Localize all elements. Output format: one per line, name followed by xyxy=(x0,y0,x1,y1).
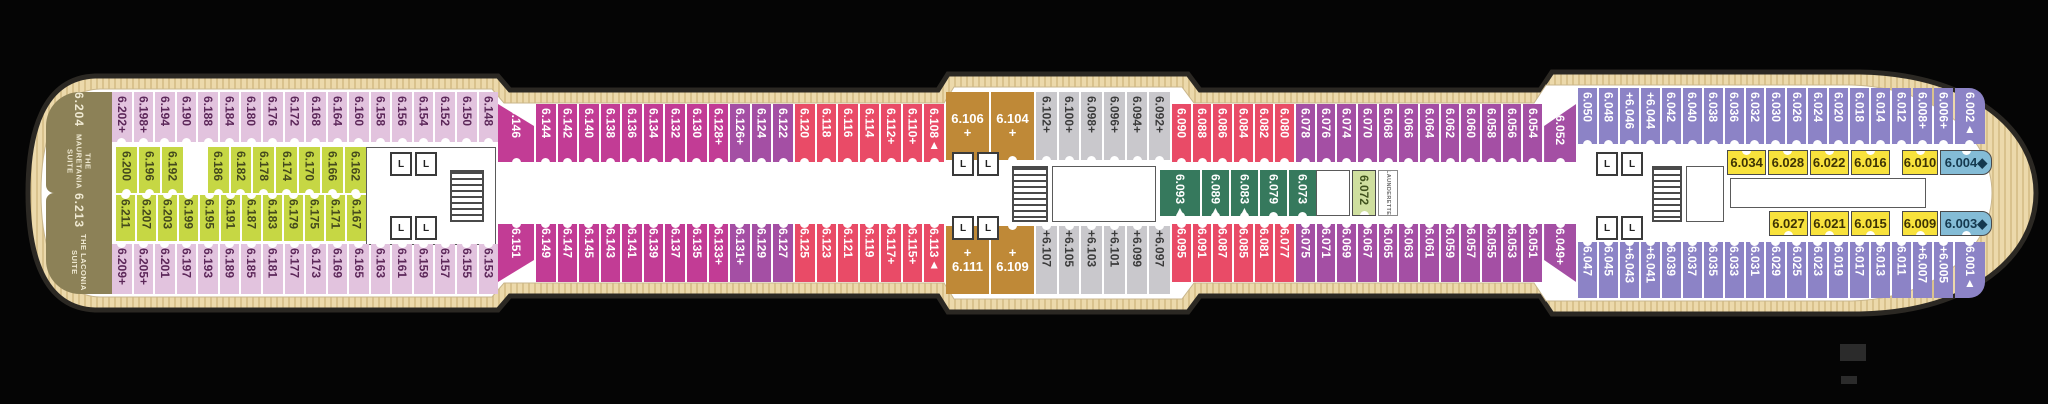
suite-name: THE MAURETANIA SUITE xyxy=(66,130,93,193)
cabin-6.016[interactable]: 6.016 xyxy=(1851,150,1890,175)
cabin-6.060[interactable]: 6.060 xyxy=(1461,104,1480,162)
cabin-6.107[interactable]: +6.107 xyxy=(1036,226,1057,294)
cabin-6.209[interactable]: 6.209+ xyxy=(112,244,132,294)
cabin-6.013[interactable]: 6.013 xyxy=(1871,242,1890,298)
cabin-6.175[interactable]: 6.175 xyxy=(305,195,324,241)
suite-6213[interactable]: 6.213THE LACONIA SUITE xyxy=(46,193,112,294)
cabin-row-mid-bottom-gray: +6.107+6.105+6.103+6.101+6.099+6.097 xyxy=(1036,226,1170,294)
cabin-6.166[interactable]: 6.166 xyxy=(322,147,343,193)
cabin-6.129[interactable]: 6.129 xyxy=(752,224,772,282)
cabin-6.171[interactable]: 6.171 xyxy=(326,195,345,241)
cabin-6.127[interactable]: 6.127 xyxy=(773,224,793,282)
lift-icon: L xyxy=(1621,152,1643,176)
cabin-6.033[interactable]: 6.033 xyxy=(1725,242,1744,298)
cabin-6.097[interactable]: +6.097 xyxy=(1149,226,1170,294)
cabin-6.119[interactable]: 6.119 xyxy=(860,224,880,282)
cabin-6.032[interactable]: 6.032 xyxy=(1746,88,1765,144)
cabin-6.161[interactable]: 6.161 xyxy=(392,244,412,294)
cabin-6.074[interactable]: 6.074 xyxy=(1337,104,1356,162)
cabin-6.150[interactable]: 6.150 xyxy=(457,92,477,142)
cabin-6.018[interactable]: 6.018 xyxy=(1850,88,1869,144)
cabin-row-aft-top-outer: 6.202+6.198+6.1946.1906.1886.1846.1806.1… xyxy=(112,92,498,142)
cabin-6.188[interactable]: 6.188 xyxy=(198,92,218,142)
decorative-mark xyxy=(1840,344,1866,361)
cabin-6.017[interactable]: 6.017 xyxy=(1850,242,1869,298)
cabin-6.156[interactable]: 6.156 xyxy=(392,92,412,142)
cabin-6.126[interactable]: 6.126+ xyxy=(730,104,750,162)
deck-layout: 6.202+6.198+6.1946.1906.1886.1846.1806.1… xyxy=(0,0,2048,404)
cabin-6.118[interactable]: 6.118 xyxy=(817,104,837,162)
cabin-6.014[interactable]: 6.014 xyxy=(1871,88,1890,144)
cabin-6.004[interactable]: 6.004◆ xyxy=(1940,150,1992,175)
cabin-6.138[interactable]: 6.138 xyxy=(601,104,621,162)
lift-icon: L xyxy=(415,216,437,240)
cabin-6.101[interactable]: +6.101 xyxy=(1104,226,1125,294)
cabin-6.035[interactable]: 6.035 xyxy=(1704,242,1723,298)
cabin-6.192[interactable]: 6.192 xyxy=(162,147,183,193)
service-room xyxy=(1686,166,1724,222)
cabin-6.131[interactable]: 6.131+ xyxy=(730,224,750,282)
cabin-6.132[interactable]: 6.132 xyxy=(665,104,685,162)
cabin-6.142[interactable]: 6.142 xyxy=(558,104,578,162)
cabin-6.083[interactable]: 6.083▲ xyxy=(1231,170,1258,216)
cabin-6.029[interactable]: 6.029 xyxy=(1766,242,1785,298)
suite-name: THE LACONIA SUITE xyxy=(70,231,88,294)
cabin-6.012[interactable]: 6.012 xyxy=(1892,88,1911,144)
cabin-6.005[interactable]: +6.005 xyxy=(1934,242,1953,298)
service-room xyxy=(1316,170,1350,216)
cabin-row-cabin-6072: 6.072 xyxy=(1352,170,1376,216)
cabin-6.036[interactable]: 6.036 xyxy=(1725,88,1744,144)
cabin-6.158[interactable]: 6.158 xyxy=(371,92,391,142)
cabin-6.189[interactable]: 6.189 xyxy=(220,244,240,294)
cabin-row-fwd-bottom-outer: 6.0476.045+6.043+6.0416.0396.0376.0356.0… xyxy=(1578,242,1985,298)
cabin-6.179[interactable]: 6.179 xyxy=(284,195,303,241)
cabin-6.108[interactable]: 6.108▲ xyxy=(924,104,944,162)
cabin-row-aft-bottom-outer: 6.209+6.205+6.2016.1976.1936.1896.1856.1… xyxy=(112,244,498,294)
cabin-6.197[interactable]: 6.197 xyxy=(177,244,197,294)
cabin-6.114[interactable]: 6.114 xyxy=(860,104,880,162)
stairs-icon xyxy=(1012,166,1048,222)
cabin-6.155[interactable]: 6.155 xyxy=(457,244,477,294)
cabin-6.169[interactable]: 6.169 xyxy=(328,244,348,294)
cabin-6.205[interactable]: 6.205+ xyxy=(134,244,154,294)
cabin-6.041[interactable]: +6.041 xyxy=(1641,242,1660,298)
stairs-icon xyxy=(450,170,484,222)
cabin-6.128[interactable]: 6.128+ xyxy=(709,104,729,162)
cabin-6.065[interactable]: 6.065 xyxy=(1379,224,1398,282)
cabin-6.021[interactable]: 6.021 xyxy=(1810,211,1849,236)
cabin-6.028[interactable]: 6.028 xyxy=(1768,150,1807,175)
cabin-6.100[interactable]: 6.100+ xyxy=(1059,92,1080,160)
cabin-6.194[interactable]: 6.194 xyxy=(155,92,175,142)
cabin-row-aft-top-inner: 6.2006.1966.1926.1866.1826.1786.1746.170… xyxy=(116,147,366,193)
cabin-6.009[interactable]: 6.009 xyxy=(1902,211,1938,236)
cabin-6.120[interactable]: 6.120 xyxy=(795,104,815,162)
cabin-row-waist-bottom: 6.1516.1496.1476.1456.1436.1416.1396.137… xyxy=(498,224,944,282)
cabin-6.098[interactable]: 6.098+ xyxy=(1081,92,1102,160)
cabin-6.057[interactable]: 6.057 xyxy=(1461,224,1480,282)
cabin-6.196[interactable]: 6.196 xyxy=(139,147,160,193)
cabin-6.202[interactable]: 6.202+ xyxy=(112,92,132,142)
cabin-6.001[interactable]: 6.001▲ xyxy=(1955,242,1985,298)
cabin-6.141[interactable]: 6.141 xyxy=(622,224,642,282)
cabin-6.105[interactable]: +6.105 xyxy=(1059,226,1080,294)
cabin-6.003[interactable]: 6.003◆ xyxy=(1940,211,1992,236)
cabin-6.070[interactable]: 6.070 xyxy=(1358,104,1377,162)
cabin-6.078[interactable]: 6.078 xyxy=(1296,104,1315,162)
cabin-row-mid-inside-teal: 6.093▲6.089▲6.083▲6.0796.073 xyxy=(1160,170,1316,216)
cabin-6.075[interactable]: 6.075 xyxy=(1296,224,1315,282)
lift-icon: L xyxy=(390,216,412,240)
lift-icon: L xyxy=(952,152,974,176)
cabin-6.059[interactable]: 6.059 xyxy=(1441,224,1460,282)
cabin-6.072[interactable]: 6.072 xyxy=(1352,170,1376,216)
cabin-6.030[interactable]: 6.030 xyxy=(1766,88,1785,144)
cabin-6.106[interactable]: 6.106 + xyxy=(946,92,989,160)
suite-6204[interactable]: 6.204THE MAURETANIA SUITE xyxy=(46,92,112,193)
cabin-6.153[interactable]: 6.153 xyxy=(479,244,499,294)
launderette-room: LAUNDERETTE xyxy=(1378,170,1398,216)
lift-icon: L xyxy=(1596,216,1618,240)
cabin-6.008[interactable]: 6.008+ xyxy=(1913,88,1932,144)
cabin-6.034[interactable]: 6.034 xyxy=(1727,150,1766,175)
cabin-6.087[interactable]: 6.087 xyxy=(1213,224,1232,282)
cabin-6.039[interactable]: 6.039 xyxy=(1662,242,1681,298)
cabin-6.173[interactable]: 6.173 xyxy=(306,244,326,294)
cabin-6.148[interactable]: 6.148 xyxy=(479,92,499,142)
cabin-6.130[interactable]: 6.130 xyxy=(687,104,707,162)
cabin-6.080[interactable]: 6.080 xyxy=(1275,104,1294,162)
cabin-6.122[interactable]: 6.122 xyxy=(773,104,793,162)
cabin-row-fwd-bottom-mid-a: 6.0276.0216.015 xyxy=(1769,211,1890,236)
cabin-row-fwd-bottom-mid-b: 6.0096.003◆ xyxy=(1902,211,1992,236)
cabin-6.063[interactable]: 6.063 xyxy=(1399,224,1418,282)
cabin-6.038[interactable]: 6.038 xyxy=(1704,88,1723,144)
cabin-6.183[interactable]: 6.183 xyxy=(263,195,282,241)
cabin-6.124[interactable]: 6.124 xyxy=(752,104,772,162)
stairs-icon xyxy=(1652,166,1682,222)
cabin-6.064[interactable]: 6.064 xyxy=(1420,104,1439,162)
cabin-6.052[interactable]: +6.052 xyxy=(1544,104,1576,162)
cabin-6.094[interactable]: 6.094+ xyxy=(1127,92,1148,160)
cabin-6.137[interactable]: 6.137 xyxy=(665,224,685,282)
cabin-6.174[interactable]: 6.174 xyxy=(276,147,297,193)
cabin-6.095[interactable]: 6.095 xyxy=(1172,224,1191,282)
cabin-6.140[interactable]: 6.140 xyxy=(579,104,599,162)
cabin-6.157[interactable]: 6.157 xyxy=(435,244,455,294)
cabin-6.093[interactable]: 6.093▲ xyxy=(1160,170,1200,216)
cabin-6.079[interactable]: 6.079 xyxy=(1260,170,1287,216)
cabin-6.068[interactable]: 6.068 xyxy=(1379,104,1398,162)
cabin-6.164[interactable]: 6.164 xyxy=(328,92,348,142)
cabin-6.187[interactable]: 6.187 xyxy=(242,195,261,241)
cabin-6.144[interactable]: 6.144 xyxy=(536,104,556,162)
cabin-6.200[interactable]: 6.200 xyxy=(116,147,137,193)
cabin-row-mid-top-run: 6.0906.0886.0866.0846.0826.0806.0786.076… xyxy=(1172,104,1576,162)
cabin-6.026[interactable]: 6.026 xyxy=(1787,88,1806,144)
cabin-6.199[interactable]: 6.199 xyxy=(179,195,198,241)
cabin-6.043[interactable]: +6.043 xyxy=(1620,242,1639,298)
cabin-6.185[interactable]: 6.185 xyxy=(241,244,261,294)
cabin-6.086[interactable]: 6.086 xyxy=(1213,104,1232,162)
deck-plan-canvas: 6.202+6.198+6.1946.1906.1886.1846.1806.1… xyxy=(0,0,2048,404)
cabin-6.045[interactable]: 6.045 xyxy=(1599,242,1618,298)
lift-icon: L xyxy=(415,152,437,176)
cabin-6.031[interactable]: 6.031 xyxy=(1746,242,1765,298)
cabin-6.182[interactable]: 6.182 xyxy=(231,147,252,193)
cabin-6.062[interactable]: 6.062 xyxy=(1441,104,1460,162)
cabin-6.027[interactable]: 6.027 xyxy=(1769,211,1808,236)
cabin-6.019[interactable]: 6.019 xyxy=(1829,242,1848,298)
empty-slot xyxy=(185,147,206,193)
lift-icon: L xyxy=(977,216,999,240)
cabin-6.011[interactable]: 6.011 xyxy=(1892,242,1911,298)
cabin-6.125[interactable]: 6.125 xyxy=(795,224,815,282)
cabin-row-fwd-top-outer: 6.0506.048+6.046+6.0446.0426.0406.0386.0… xyxy=(1578,88,1985,144)
cabin-6.170[interactable]: 6.170 xyxy=(299,147,320,193)
cabin-6.091[interactable]: 6.091 xyxy=(1193,224,1212,282)
cabin-6.096[interactable]: 6.096+ xyxy=(1104,92,1125,160)
cabin-6.046[interactable]: +6.046 xyxy=(1620,88,1639,144)
cabin-6.190[interactable]: 6.190 xyxy=(177,92,197,142)
cabin-6.178[interactable]: 6.178 xyxy=(253,147,274,193)
cabin-6.181[interactable]: 6.181 xyxy=(263,244,283,294)
cabin-6.092[interactable]: 6.092+ xyxy=(1149,92,1170,160)
cabin-6.058[interactable]: 6.058 xyxy=(1482,104,1501,162)
cabin-6.069[interactable]: 6.069 xyxy=(1337,224,1356,282)
cabin-row-mid-bottom-run: 6.0956.0916.0876.0856.0816.0776.0756.071… xyxy=(1172,224,1576,282)
cabin-6.085[interactable]: 6.085 xyxy=(1234,224,1253,282)
cabin-row-waist-top: 6.1466.1446.1426.1406.1386.1366.1346.132… xyxy=(498,104,944,162)
cabin-6.139[interactable]: 6.139 xyxy=(644,224,664,282)
cabin-6.207[interactable]: 6.207 xyxy=(137,195,156,241)
service-room xyxy=(1052,166,1156,222)
cabin-6.211[interactable]: 6.211 xyxy=(116,195,135,241)
cabin-6.201[interactable]: 6.201 xyxy=(155,244,175,294)
cabin-6.116[interactable]: 6.116 xyxy=(838,104,858,162)
cabin-6.099[interactable]: +6.099 xyxy=(1127,226,1148,294)
cabin-6.151[interactable]: 6.151 xyxy=(498,224,534,282)
cabin-6.104[interactable]: 6.104 + xyxy=(991,92,1034,160)
cabin-6.044[interactable]: +6.044 xyxy=(1641,88,1660,144)
cabin-6.143[interactable]: 6.143 xyxy=(601,224,621,282)
cabin-6.152[interactable]: 6.152 xyxy=(435,92,455,142)
cabin-6.121[interactable]: 6.121 xyxy=(838,224,858,282)
cabin-6.054[interactable]: 6.054 xyxy=(1523,104,1542,162)
cabin-6.172[interactable]: 6.172 xyxy=(285,92,305,142)
cabin-row-mid-top-brown: 6.106 +6.104 + xyxy=(946,92,1034,160)
cabin-6.077[interactable]: 6.077 xyxy=(1275,224,1294,282)
cabin-6.168[interactable]: 6.168 xyxy=(306,92,326,142)
cabin-row-fwd-top-mid-b: 6.0106.004◆ xyxy=(1902,150,1992,175)
cabin-6.162[interactable]: 6.162 xyxy=(345,147,366,193)
cabin-6.134[interactable]: 6.134 xyxy=(644,104,664,162)
cabin-6.110[interactable]: 6.110+ xyxy=(903,104,923,162)
cabin-6.053[interactable]: 6.053 xyxy=(1503,224,1522,282)
cabin-6.006[interactable]: 6.006+ xyxy=(1934,88,1953,144)
cabin-row-aft-bottom-inner: 6.2116.2076.2036.1996.1956.1916.1876.183… xyxy=(116,195,366,241)
cabin-6.090[interactable]: 6.090 xyxy=(1172,104,1191,162)
cabin-6.048[interactable]: 6.048 xyxy=(1599,88,1618,144)
lift-icon: L xyxy=(1621,216,1643,240)
cabin-6.084[interactable]: 6.084 xyxy=(1234,104,1253,162)
cabin-6.024[interactable]: 6.024 xyxy=(1808,88,1827,144)
cabin-6.088[interactable]: 6.088 xyxy=(1193,104,1212,162)
cabin-6.067[interactable]: 6.067 xyxy=(1358,224,1377,282)
cabin-6.123[interactable]: 6.123 xyxy=(817,224,837,282)
cabin-6.037[interactable]: 6.037 xyxy=(1683,242,1702,298)
cabin-6.160[interactable]: 6.160 xyxy=(349,92,369,142)
cabin-6.203[interactable]: 6.203 xyxy=(158,195,177,241)
cabin-row-mid-top-gray: 6.102+6.100+6.098+6.096+6.094+6.092+ xyxy=(1036,92,1170,160)
cabin-6.023[interactable]: 6.023 xyxy=(1808,242,1827,298)
lift-icon: L xyxy=(952,216,974,240)
cabin-6.145[interactable]: 6.145 xyxy=(579,224,599,282)
cabin-6.165[interactable]: 6.165 xyxy=(349,244,369,294)
cabin-6.020[interactable]: 6.020 xyxy=(1829,88,1848,144)
cabin-6.180[interactable]: 6.180 xyxy=(241,92,261,142)
cabin-6.050[interactable]: 6.050 xyxy=(1578,88,1597,144)
cabin-6.073[interactable]: 6.073 xyxy=(1289,170,1316,216)
cabin-6.076[interactable]: 6.076 xyxy=(1317,104,1336,162)
cabin-6.042[interactable]: 6.042 xyxy=(1662,88,1681,144)
lift-icon: L xyxy=(390,152,412,176)
cabin-6.040[interactable]: 6.040 xyxy=(1683,88,1702,144)
cabin-6.159[interactable]: 6.159 xyxy=(414,244,434,294)
cabin-6.103[interactable]: +6.103 xyxy=(1081,226,1102,294)
cabin-6.025[interactable]: 6.025 xyxy=(1787,242,1806,298)
cabin-6.177[interactable]: 6.177 xyxy=(285,244,305,294)
cabin-6.071[interactable]: 6.071 xyxy=(1317,224,1336,282)
cabin-6.002[interactable]: 6.002▲ xyxy=(1955,88,1985,144)
cabin-6.198[interactable]: 6.198+ xyxy=(134,92,154,142)
cabin-6.007[interactable]: +6.007 xyxy=(1913,242,1932,298)
suite-number: 6.213 xyxy=(72,193,86,228)
cabin-6.047[interactable]: 6.047 xyxy=(1578,242,1597,298)
cabin-6.066[interactable]: 6.066 xyxy=(1399,104,1418,162)
cabin-6.176[interactable]: 6.176 xyxy=(263,92,283,142)
cabin-6.136[interactable]: 6.136 xyxy=(622,104,642,162)
cabin-6.056[interactable]: 6.056 xyxy=(1503,104,1522,162)
service-room xyxy=(1730,178,1926,208)
cabin-6.049[interactable]: 6.049+ xyxy=(1544,224,1576,282)
cabin-6.135[interactable]: 6.135 xyxy=(687,224,707,282)
cabin-6.186[interactable]: 6.186 xyxy=(208,147,229,193)
cabin-6.055[interactable]: 6.055 xyxy=(1482,224,1501,282)
cabin-6.154[interactable]: 6.154 xyxy=(414,92,434,142)
cabin-6.193[interactable]: 6.193 xyxy=(198,244,218,294)
cabin-6.112[interactable]: 6.112+ xyxy=(881,104,901,162)
cabin-6.115[interactable]: 6.115+ xyxy=(903,224,923,282)
cabin-6.133[interactable]: 6.133+ xyxy=(709,224,729,282)
cabin-6.147[interactable]: 6.147 xyxy=(558,224,578,282)
cabin-6.146[interactable]: 6.146 xyxy=(498,104,534,162)
cabin-6.195[interactable]: 6.195 xyxy=(200,195,219,241)
cabin-6.082[interactable]: 6.082 xyxy=(1255,104,1274,162)
cabin-6.010[interactable]: 6.010 xyxy=(1902,150,1938,175)
cabin-6.051[interactable]: 6.051 xyxy=(1523,224,1542,282)
cabin-6.081[interactable]: 6.081 xyxy=(1255,224,1274,282)
cabin-6.061[interactable]: 6.061 xyxy=(1420,224,1439,282)
cabin-6.191[interactable]: 6.191 xyxy=(221,195,240,241)
cabin-6.113[interactable]: 6.113▲ xyxy=(924,224,944,282)
cabin-6.102[interactable]: 6.102+ xyxy=(1036,92,1057,160)
cabin-6.015[interactable]: 6.015 xyxy=(1851,211,1890,236)
cabin-6.149[interactable]: 6.149 xyxy=(536,224,556,282)
cabin-6.022[interactable]: 6.022 xyxy=(1810,150,1849,175)
cabin-6.117[interactable]: 6.117+ xyxy=(881,224,901,282)
cabin-6.184[interactable]: 6.184 xyxy=(220,92,240,142)
lift-icon: L xyxy=(1596,152,1618,176)
lift-icon: L xyxy=(977,152,999,176)
cabin-6.089[interactable]: 6.089▲ xyxy=(1202,170,1229,216)
decorative-mark xyxy=(1841,376,1857,384)
cabin-6.167[interactable]: 6.167 xyxy=(347,195,366,241)
cabin-row-fwd-top-mid-a: 6.0346.0286.0226.016 xyxy=(1727,150,1890,175)
suite-number: 6.204 xyxy=(72,92,86,127)
cabin-6.163[interactable]: 6.163 xyxy=(371,244,391,294)
